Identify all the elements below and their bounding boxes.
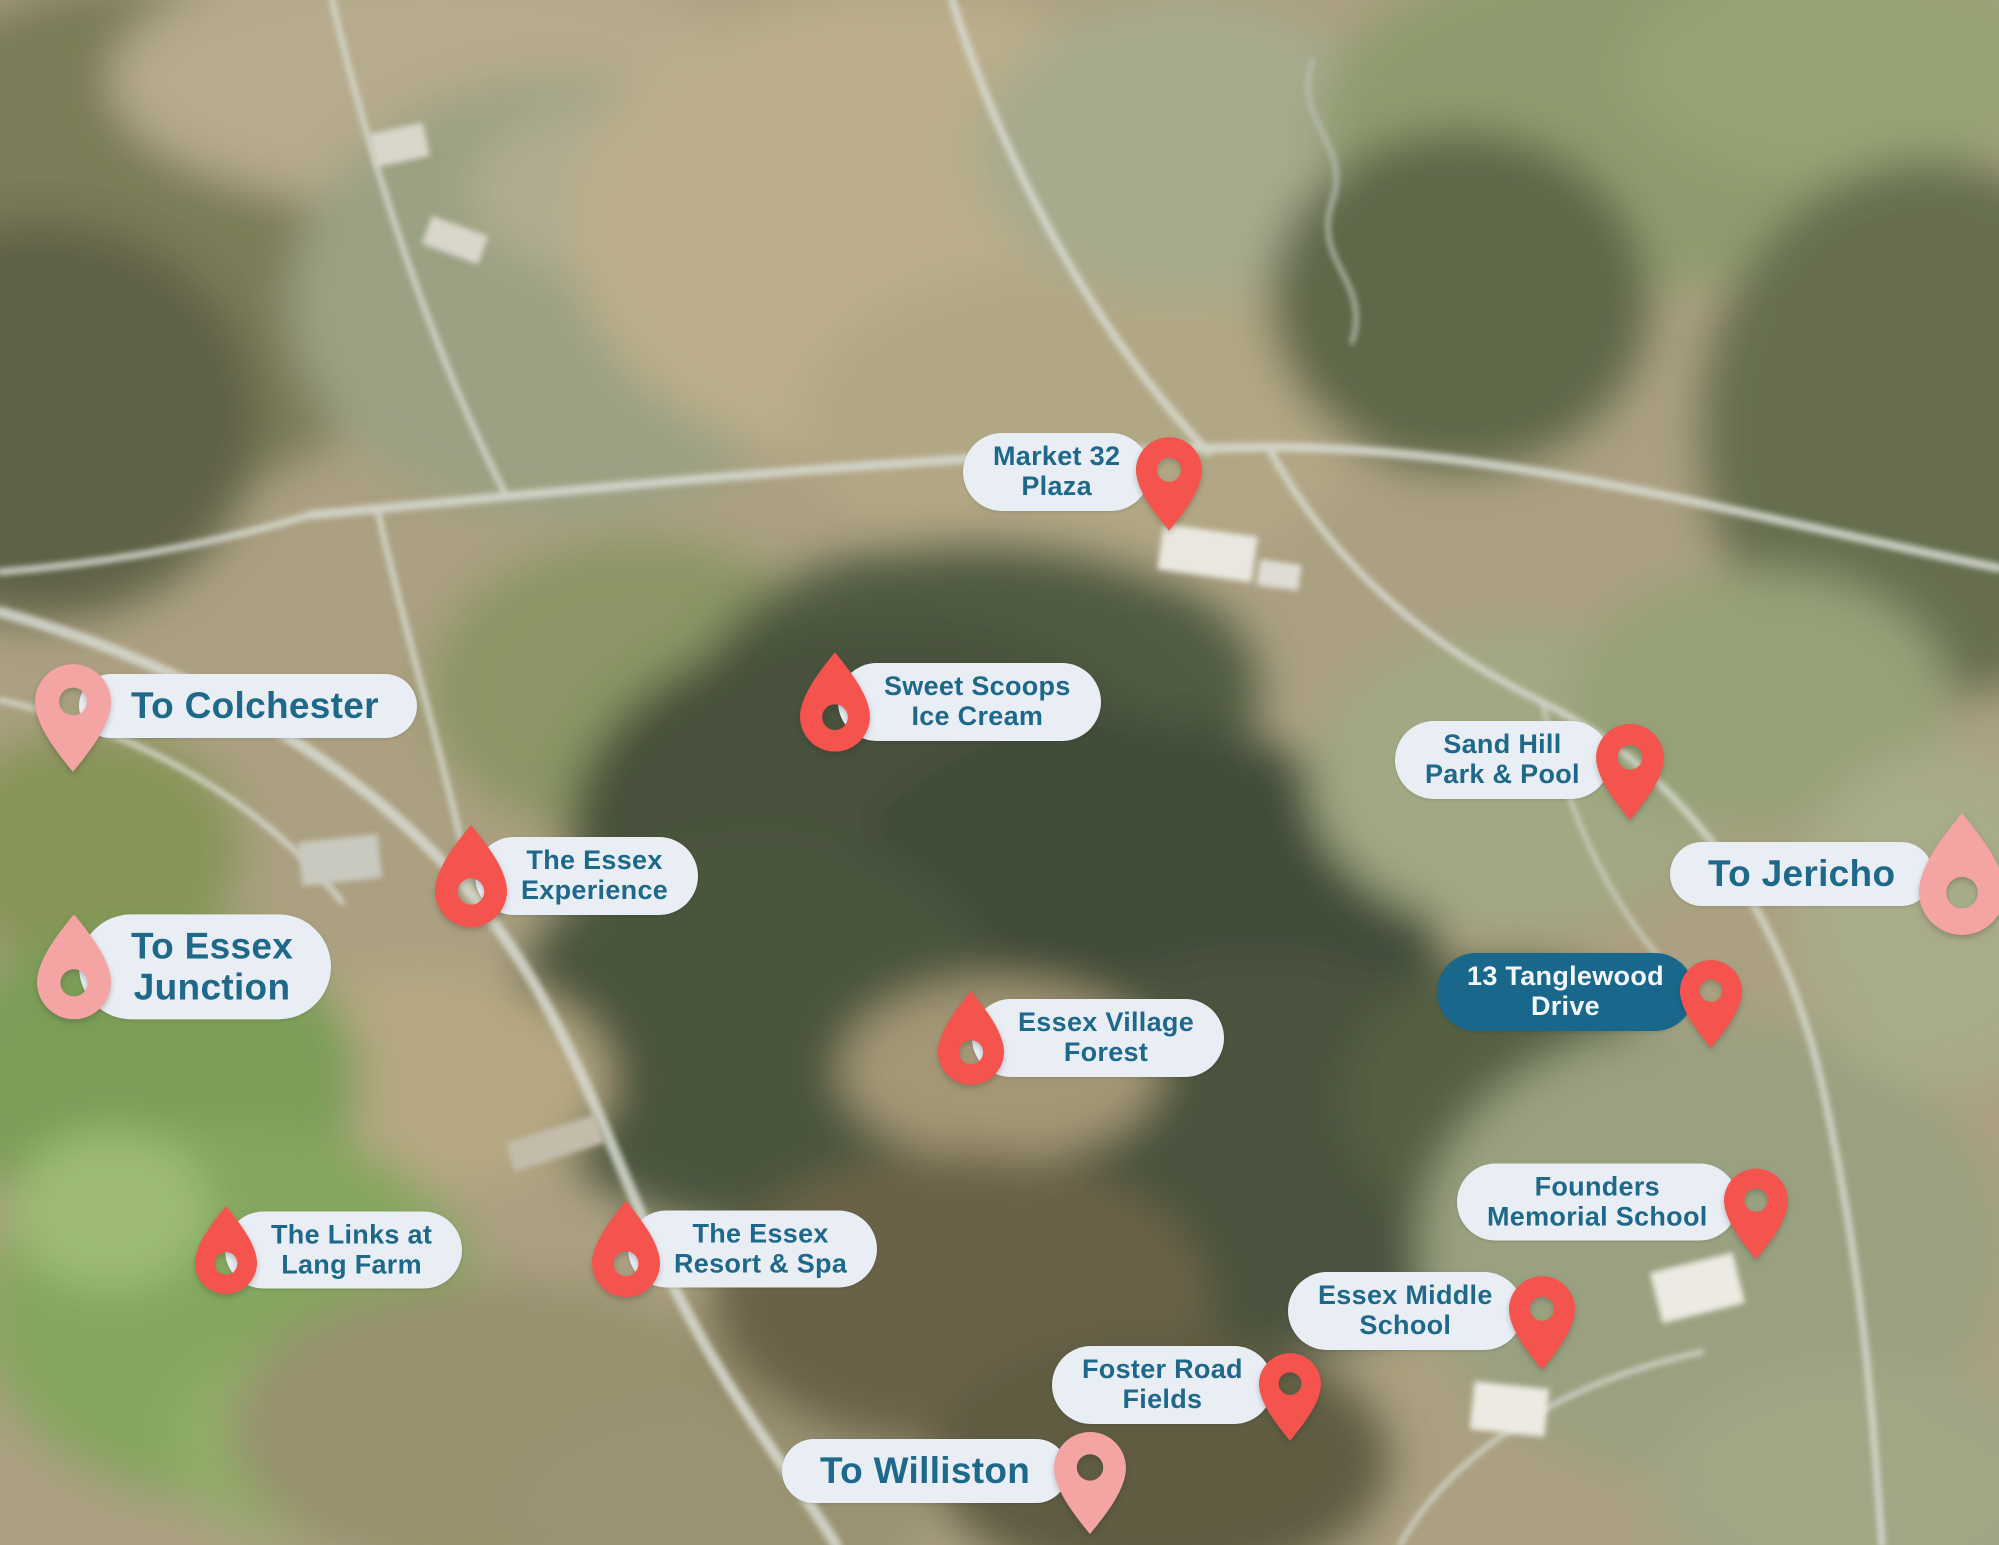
marker-label-to-williston: To Williston	[782, 1439, 1068, 1504]
map-pin-icon	[1509, 1276, 1575, 1370]
marker-essex-village-forest[interactable]: Essex VillageForest	[938, 991, 1224, 1085]
map-pin-icon	[1259, 1353, 1321, 1441]
marker-label-founders-memorial-school: FoundersMemorial School	[1457, 1163, 1738, 1240]
marker-label-the-links-at-lang-farm: The Links atLang Farm	[225, 1211, 462, 1288]
marker-label-to-colchester: To Colchester	[79, 674, 417, 739]
map-pin-icon	[1054, 1432, 1126, 1534]
marker-label-essex-middle-school: Essex MiddleSchool	[1288, 1272, 1523, 1349]
map-pin-icon	[435, 825, 507, 927]
marker-label-foster-road-fields: Foster RoadFields	[1052, 1346, 1273, 1423]
markers-layer: To ColchesterMarket 32PlazaSweet ScoopsI…	[0, 0, 1999, 1545]
marker-label-the-essex-resort-spa: The EssexResort & Spa	[628, 1210, 877, 1287]
marker-sweet-scoops-ice-cream[interactable]: Sweet ScoopsIce Cream	[800, 652, 1101, 752]
map-pin-icon	[592, 1201, 660, 1298]
map-pin-icon	[195, 1203, 257, 1298]
map-pin-icon	[800, 652, 870, 752]
marker-label-to-essex-junction: To EssexJunction	[79, 914, 331, 1019]
map-pin-icon	[1680, 960, 1742, 1048]
marker-to-jericho[interactable]: To Jericho	[1670, 813, 1999, 935]
map-pin-icon	[1724, 1169, 1788, 1260]
marker-the-links-at-lang-farm[interactable]: The Links atLang Farm	[195, 1203, 462, 1298]
marker-to-colchester[interactable]: To Colchester	[35, 652, 417, 760]
marker-market-32-plaza[interactable]: Market 32Plaza	[963, 425, 1202, 519]
marker-the-essex-resort-spa[interactable]: The EssexResort & Spa	[592, 1201, 877, 1298]
marker-foster-road-fields[interactable]: Foster RoadFields	[1052, 1341, 1321, 1429]
map-pin-icon	[35, 664, 111, 772]
marker-sand-hill-park-pool[interactable]: Sand HillPark & Pool	[1395, 712, 1664, 808]
map-pin-icon	[1919, 813, 1999, 935]
map-stage: To ColchesterMarket 32PlazaSweet ScoopsI…	[0, 0, 1999, 1545]
map-pin-icon	[1596, 724, 1664, 820]
marker-label-13-tanglewood-drive: 13 TanglewoodDrive	[1437, 953, 1694, 1030]
map-pin-icon	[938, 991, 1004, 1085]
marker-label-sand-hill-park-pool: Sand HillPark & Pool	[1395, 721, 1610, 798]
marker-essex-middle-school[interactable]: Essex MiddleSchool	[1288, 1264, 1575, 1358]
marker-to-williston[interactable]: To Williston	[782, 1420, 1126, 1522]
marker-founders-memorial-school[interactable]: FoundersMemorial School	[1457, 1157, 1788, 1248]
map-pin-icon	[37, 915, 111, 1020]
marker-to-essex-junction[interactable]: To EssexJunction	[37, 914, 331, 1019]
marker-label-essex-village-forest: Essex VillageForest	[972, 999, 1224, 1076]
marker-label-the-essex-experience: The EssexExperience	[475, 837, 698, 914]
marker-label-to-jericho: To Jericho	[1670, 842, 1933, 907]
map-pin-icon	[1136, 437, 1202, 531]
marker-the-essex-experience[interactable]: The EssexExperience	[435, 825, 698, 927]
marker-label-market-32-plaza: Market 32Plaza	[963, 433, 1150, 510]
marker-label-sweet-scoops-ice-cream: Sweet ScoopsIce Cream	[838, 663, 1101, 740]
marker-13-tanglewood-drive[interactable]: 13 TanglewoodDrive	[1437, 948, 1742, 1036]
